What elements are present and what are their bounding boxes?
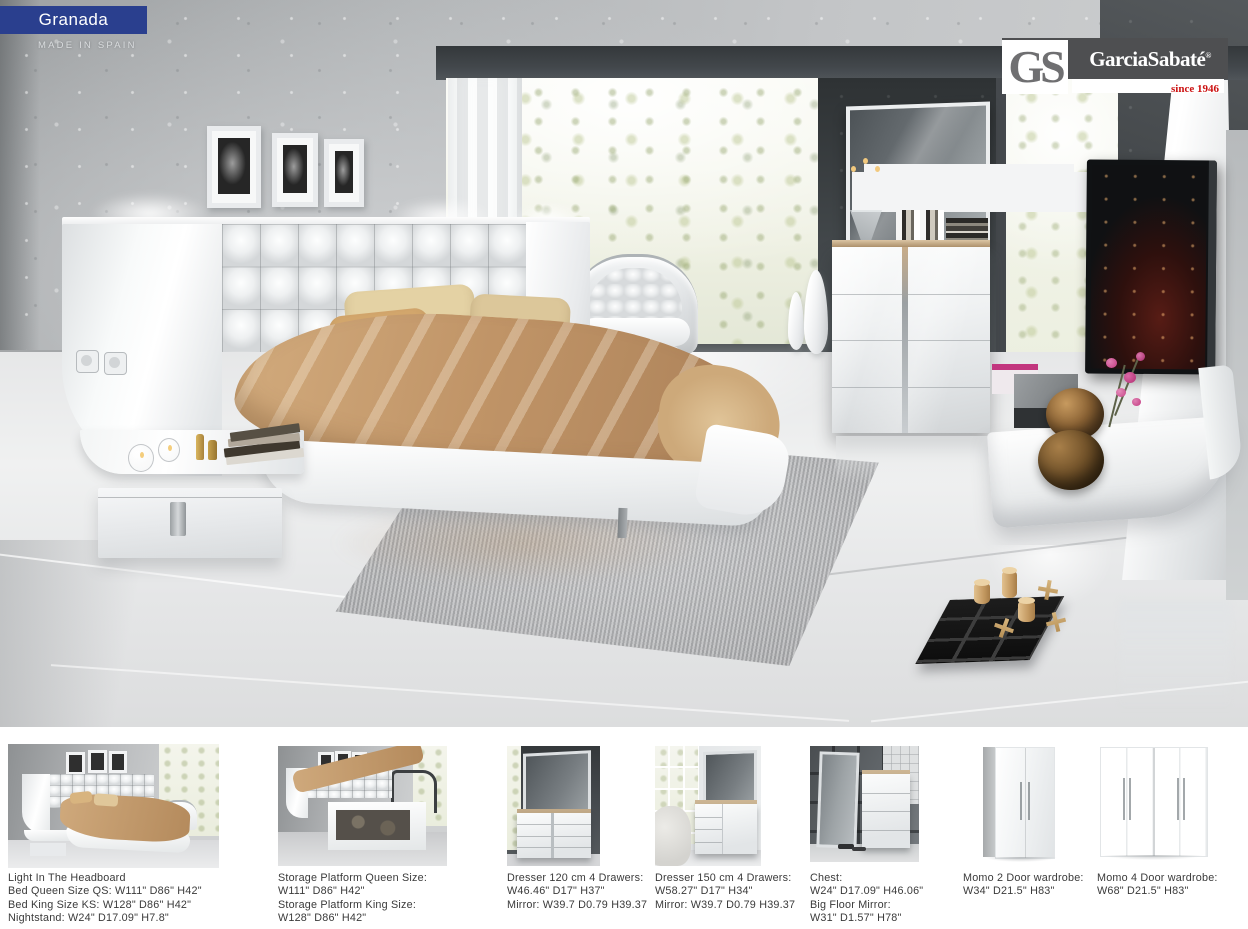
mini-dresser xyxy=(695,804,757,854)
mini-nightstand xyxy=(24,830,70,841)
drawer-handle xyxy=(170,502,186,536)
spec-line: Bed King Size KS: W128" D86" H42" xyxy=(8,899,270,912)
shelf-body xyxy=(987,416,1239,529)
mini-wall-art xyxy=(88,750,107,773)
mini-drawer-column xyxy=(695,804,723,854)
mini-drawer-seam xyxy=(862,830,910,831)
product-thumbnail-storage-bed xyxy=(278,746,447,866)
candle-flame xyxy=(168,445,172,451)
brand-monogram: GS xyxy=(1002,40,1068,94)
spec-line: Storage Platform King Size: xyxy=(278,899,488,912)
bronze-vase xyxy=(1038,430,1104,490)
product-thumbnail-wardrobe-4door xyxy=(1097,744,1210,868)
wardrobe-front xyxy=(1100,747,1208,857)
candle-flame xyxy=(140,452,144,458)
product-thumbnail-bed xyxy=(8,744,219,868)
spec-line: Nightstand: W24" D17.09" H7.8" xyxy=(8,912,270,925)
mini-wall-art xyxy=(109,751,127,773)
center-seam xyxy=(1153,748,1155,856)
spec-line: W31" D1.57" H78" xyxy=(810,912,990,925)
bedroom-photo: Granada MADE IN SPAIN GarciaSabaté® sinc… xyxy=(0,0,1248,727)
thumbnail-scene xyxy=(655,746,761,866)
dresser-center-strip xyxy=(902,247,908,433)
mini-center-strip xyxy=(551,813,554,858)
orchid-flower xyxy=(1116,388,1126,397)
thumbnail-scene xyxy=(278,746,447,866)
wall-outlet xyxy=(104,352,127,375)
candle xyxy=(876,172,1076,212)
product-thumbnail-dresser-150 xyxy=(655,746,761,866)
mini-armchair xyxy=(655,806,691,866)
wall-art-frame xyxy=(272,133,318,207)
granada-product-sheet: Granada MADE IN SPAIN GarciaSabaté® sinc… xyxy=(0,0,1248,929)
floating-tv-shelf xyxy=(990,388,1248,598)
spec-line: Bed Queen Size QS: W111" D86" H42" xyxy=(8,885,270,898)
game-piece-cylinder xyxy=(1002,570,1017,598)
door-handle xyxy=(1028,782,1030,820)
tic-tac-toe-game xyxy=(944,578,1114,674)
thumbnail-scene xyxy=(507,746,600,866)
drawer-seam xyxy=(98,497,282,498)
dresser-top xyxy=(832,240,990,247)
wall-outlet xyxy=(76,350,99,373)
decor-bottle xyxy=(208,440,217,460)
mini-wall-art xyxy=(66,752,85,775)
collection-badge: Granada xyxy=(0,6,147,34)
mini-nightstand-drawer xyxy=(30,843,66,856)
dresser xyxy=(832,247,990,433)
made-in-label: MADE IN SPAIN xyxy=(38,40,137,51)
thumbnail-scene xyxy=(8,744,219,868)
door-handle xyxy=(1183,778,1185,820)
orchid-flower xyxy=(1136,352,1145,361)
spec-line: W111" D86" H42" xyxy=(278,885,488,898)
mini-drawer-seam xyxy=(517,847,591,848)
spec-line: Big Floor Mirror: xyxy=(810,899,990,912)
thumbnail-scene xyxy=(810,746,919,862)
candle-globe xyxy=(158,438,180,462)
spec-line: Light In The Headboard xyxy=(8,872,270,885)
spec-line: Storage Platform Queen Size: xyxy=(278,872,488,885)
nightstand-drawer xyxy=(98,488,282,558)
dresser-floor-reflection xyxy=(836,436,988,484)
product-thumbnail-dresser-120 xyxy=(507,746,600,866)
product-thumbnail-chest-mirror xyxy=(810,746,919,862)
mini-chest xyxy=(862,774,910,848)
orchid-flower xyxy=(1124,372,1136,383)
brand-name: GarciaSabaté® xyxy=(1072,47,1228,72)
drawer-seam xyxy=(832,294,990,295)
mini-dresser xyxy=(517,813,591,858)
collection-name: Granada xyxy=(39,10,109,30)
spec-line: W68" D21.5" H83" xyxy=(1097,885,1248,898)
magazine-stack xyxy=(222,424,306,470)
wardrobe-shadow xyxy=(1103,855,1203,860)
door-handle xyxy=(1177,778,1179,820)
mini-drawer-seam xyxy=(517,836,591,837)
brand-since: since 1946 xyxy=(1072,79,1224,93)
wardrobe-side-panel xyxy=(983,747,995,857)
tv-screen xyxy=(1090,164,1207,369)
door-handle xyxy=(1123,778,1125,820)
thumbnail-scene xyxy=(1097,744,1210,868)
mini-pillow xyxy=(69,791,92,804)
floor-shadow xyxy=(0,540,150,727)
drawer-seam xyxy=(832,340,990,341)
mini-pillow xyxy=(94,793,119,807)
wall-art-photo xyxy=(335,151,353,193)
wall-art-photo xyxy=(283,145,307,193)
candle-globe xyxy=(128,444,154,472)
product-specs-wardrobe-4door: Momo 4 Door wardrobe: W68" D21.5" H83" xyxy=(1097,872,1248,899)
mini-shoes xyxy=(852,847,866,851)
door-handle xyxy=(1020,782,1022,820)
wardrobe-shadow xyxy=(985,857,1057,862)
orchid-flower xyxy=(1106,358,1117,368)
game-piece-cylinder xyxy=(1018,600,1035,622)
mini-drawer-seam xyxy=(695,817,722,818)
thumbnail-scene xyxy=(963,744,1075,868)
product-specs-bed: Light In The Headboard Bed Queen Size QS… xyxy=(8,872,270,926)
mini-floor-mirror xyxy=(816,751,859,848)
mini-drawer-seam xyxy=(862,811,910,812)
brand-logo: GarciaSabaté® since 1946 GS xyxy=(1002,38,1230,96)
game-piece-cylinder xyxy=(974,582,990,604)
mini-storage-cavity xyxy=(336,810,410,840)
decor-bottle xyxy=(196,434,204,460)
panel-floor-reflection xyxy=(1120,600,1230,710)
mini-drawer-seam xyxy=(517,824,591,825)
product-thumbnail-wardrobe-2door xyxy=(963,744,1075,868)
door-handle xyxy=(1129,778,1131,820)
spec-line: Momo 4 Door wardrobe: xyxy=(1097,872,1248,885)
product-specs-storage-bed: Storage Platform Queen Size: W111" D86" … xyxy=(278,872,488,926)
mini-drawer-seam xyxy=(862,793,910,794)
drawer-seam xyxy=(832,387,990,388)
bed-leg xyxy=(617,508,627,538)
wall-art-frame xyxy=(324,139,364,207)
spec-line: W128" D86" H42" xyxy=(278,912,488,925)
mini-headboard-wing xyxy=(22,774,50,834)
orchid-flower xyxy=(1132,398,1141,406)
door-seam xyxy=(1025,748,1026,858)
wardrobe-front xyxy=(995,747,1055,859)
mini-drawer-seam xyxy=(695,829,722,830)
television xyxy=(1085,159,1217,374)
registered-mark: ® xyxy=(1205,51,1210,60)
mini-mirror xyxy=(523,750,591,818)
mini-drawer-seam xyxy=(695,842,722,843)
